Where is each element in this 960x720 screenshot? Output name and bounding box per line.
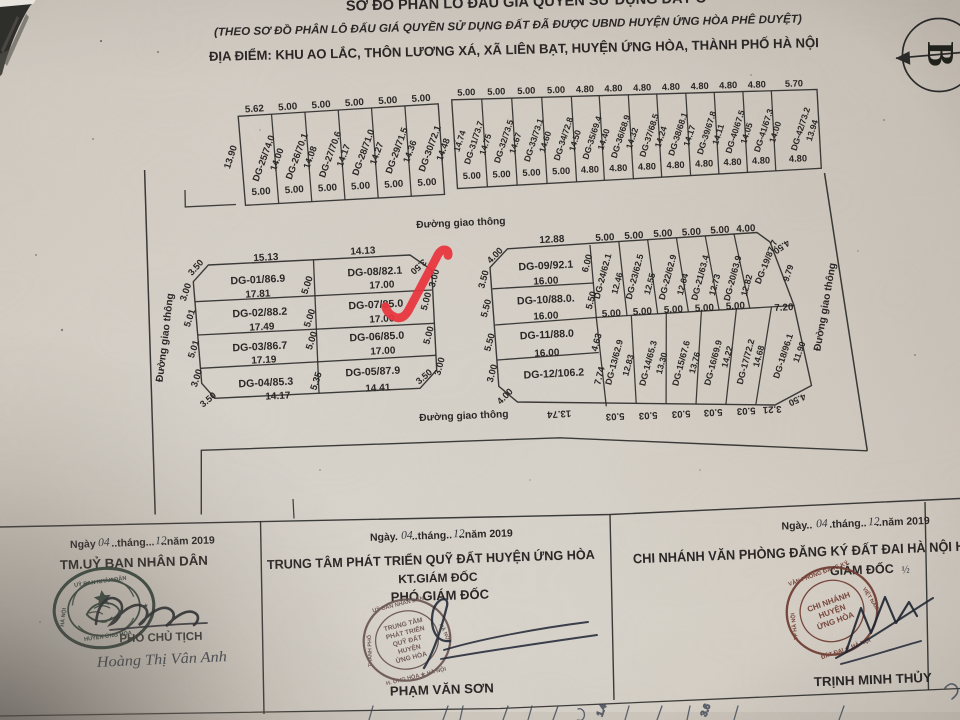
svg-text:7.20: 7.20 <box>774 302 794 314</box>
svg-text:13.74: 13.74 <box>546 407 571 419</box>
svg-text:5.00: 5.00 <box>547 85 565 96</box>
svg-text:5.03: 5.03 <box>639 409 658 421</box>
svg-text:5.00: 5.00 <box>624 230 644 242</box>
svg-text:4.80: 4.80 <box>581 164 599 175</box>
svg-text:4.80: 4.80 <box>576 84 594 95</box>
svg-text:5.00: 5.00 <box>251 186 271 198</box>
svg-text:Ngày..: Ngày.. <box>781 519 812 532</box>
svg-text:5.03: 5.03 <box>704 406 723 418</box>
svg-text:15.13: 15.13 <box>253 252 279 264</box>
svg-text:5.03: 5.03 <box>672 408 691 420</box>
svg-text:5.00: 5.00 <box>602 308 622 320</box>
svg-text:4.80: 4.80 <box>633 82 651 93</box>
svg-text:5.00: 5.00 <box>318 182 338 194</box>
svg-text:14.13: 14.13 <box>350 245 376 257</box>
svg-text:12.88: 12.88 <box>539 234 565 246</box>
svg-text:5.00: 5.00 <box>682 226 702 238</box>
svg-text:5.00: 5.00 <box>311 99 331 111</box>
svg-text:5.00: 5.00 <box>284 184 304 196</box>
svg-text:5.00: 5.00 <box>351 180 371 192</box>
svg-text:5.00: 5.00 <box>710 224 730 236</box>
svg-text:5.00: 5.00 <box>457 87 475 98</box>
svg-text:5.00: 5.00 <box>278 101 298 113</box>
svg-text:4.80: 4.80 <box>609 163 627 174</box>
svg-text:4.80: 4.80 <box>690 81 708 92</box>
svg-text:5.00: 5.00 <box>664 304 684 316</box>
svg-text:5.00: 5.00 <box>653 228 673 240</box>
svg-text:4.80: 4.80 <box>695 158 713 169</box>
svg-text:5.00: 5.00 <box>411 93 431 105</box>
svg-text:5.03: 5.03 <box>606 410 625 422</box>
svg-text:5.00: 5.00 <box>463 170 481 181</box>
svg-text:5.62: 5.62 <box>245 103 265 115</box>
svg-text:5.00: 5.00 <box>633 306 653 318</box>
svg-text:4.80: 4.80 <box>662 82 680 93</box>
svg-text:16.00: 16.00 <box>533 310 559 322</box>
svg-text:5.00: 5.00 <box>345 97 365 109</box>
svg-text:5.00: 5.00 <box>487 86 505 97</box>
svg-text:17.81: 17.81 <box>245 288 271 300</box>
svg-text:5.00: 5.00 <box>378 95 398 107</box>
svg-text:5.00: 5.00 <box>384 179 404 191</box>
svg-text:5.00: 5.00 <box>695 302 715 314</box>
svg-text:4.80: 4.80 <box>604 83 622 94</box>
svg-text:4.00: 4.00 <box>736 223 756 235</box>
svg-text:16.00: 16.00 <box>534 347 560 359</box>
svg-text:4.80: 4.80 <box>719 80 737 91</box>
svg-text:4.80: 4.80 <box>752 155 770 166</box>
svg-text:5.00: 5.00 <box>595 232 615 244</box>
svg-text:..năm 2019: ..năm 2019 <box>876 515 930 529</box>
svg-text:5.00: 5.00 <box>417 177 437 189</box>
svg-text:4.80: 4.80 <box>666 160 684 171</box>
svg-text:5.00: 5.00 <box>517 85 535 96</box>
svg-text:5.70: 5.70 <box>785 78 803 89</box>
svg-text:17.00: 17.00 <box>369 279 395 291</box>
svg-text:5.00: 5.00 <box>726 300 746 312</box>
svg-text:.tháng..: .tháng.. <box>829 517 867 530</box>
svg-text:4.80: 4.80 <box>748 79 766 90</box>
svg-text:5.00: 5.00 <box>522 167 540 178</box>
svg-text:5.00: 5.00 <box>492 169 510 180</box>
svg-text:4.80: 4.80 <box>789 153 807 164</box>
svg-text:5.03: 5.03 <box>737 405 756 417</box>
svg-text:4.80: 4.80 <box>723 157 741 168</box>
svg-text:16.00: 16.00 <box>533 275 559 287</box>
svg-text:3.21: 3.21 <box>762 403 782 415</box>
svg-text:04: 04 <box>816 518 828 530</box>
svg-text:5.00: 5.00 <box>552 166 570 177</box>
svg-text:B: B <box>919 41 960 66</box>
svg-text:4.80: 4.80 <box>638 161 656 172</box>
